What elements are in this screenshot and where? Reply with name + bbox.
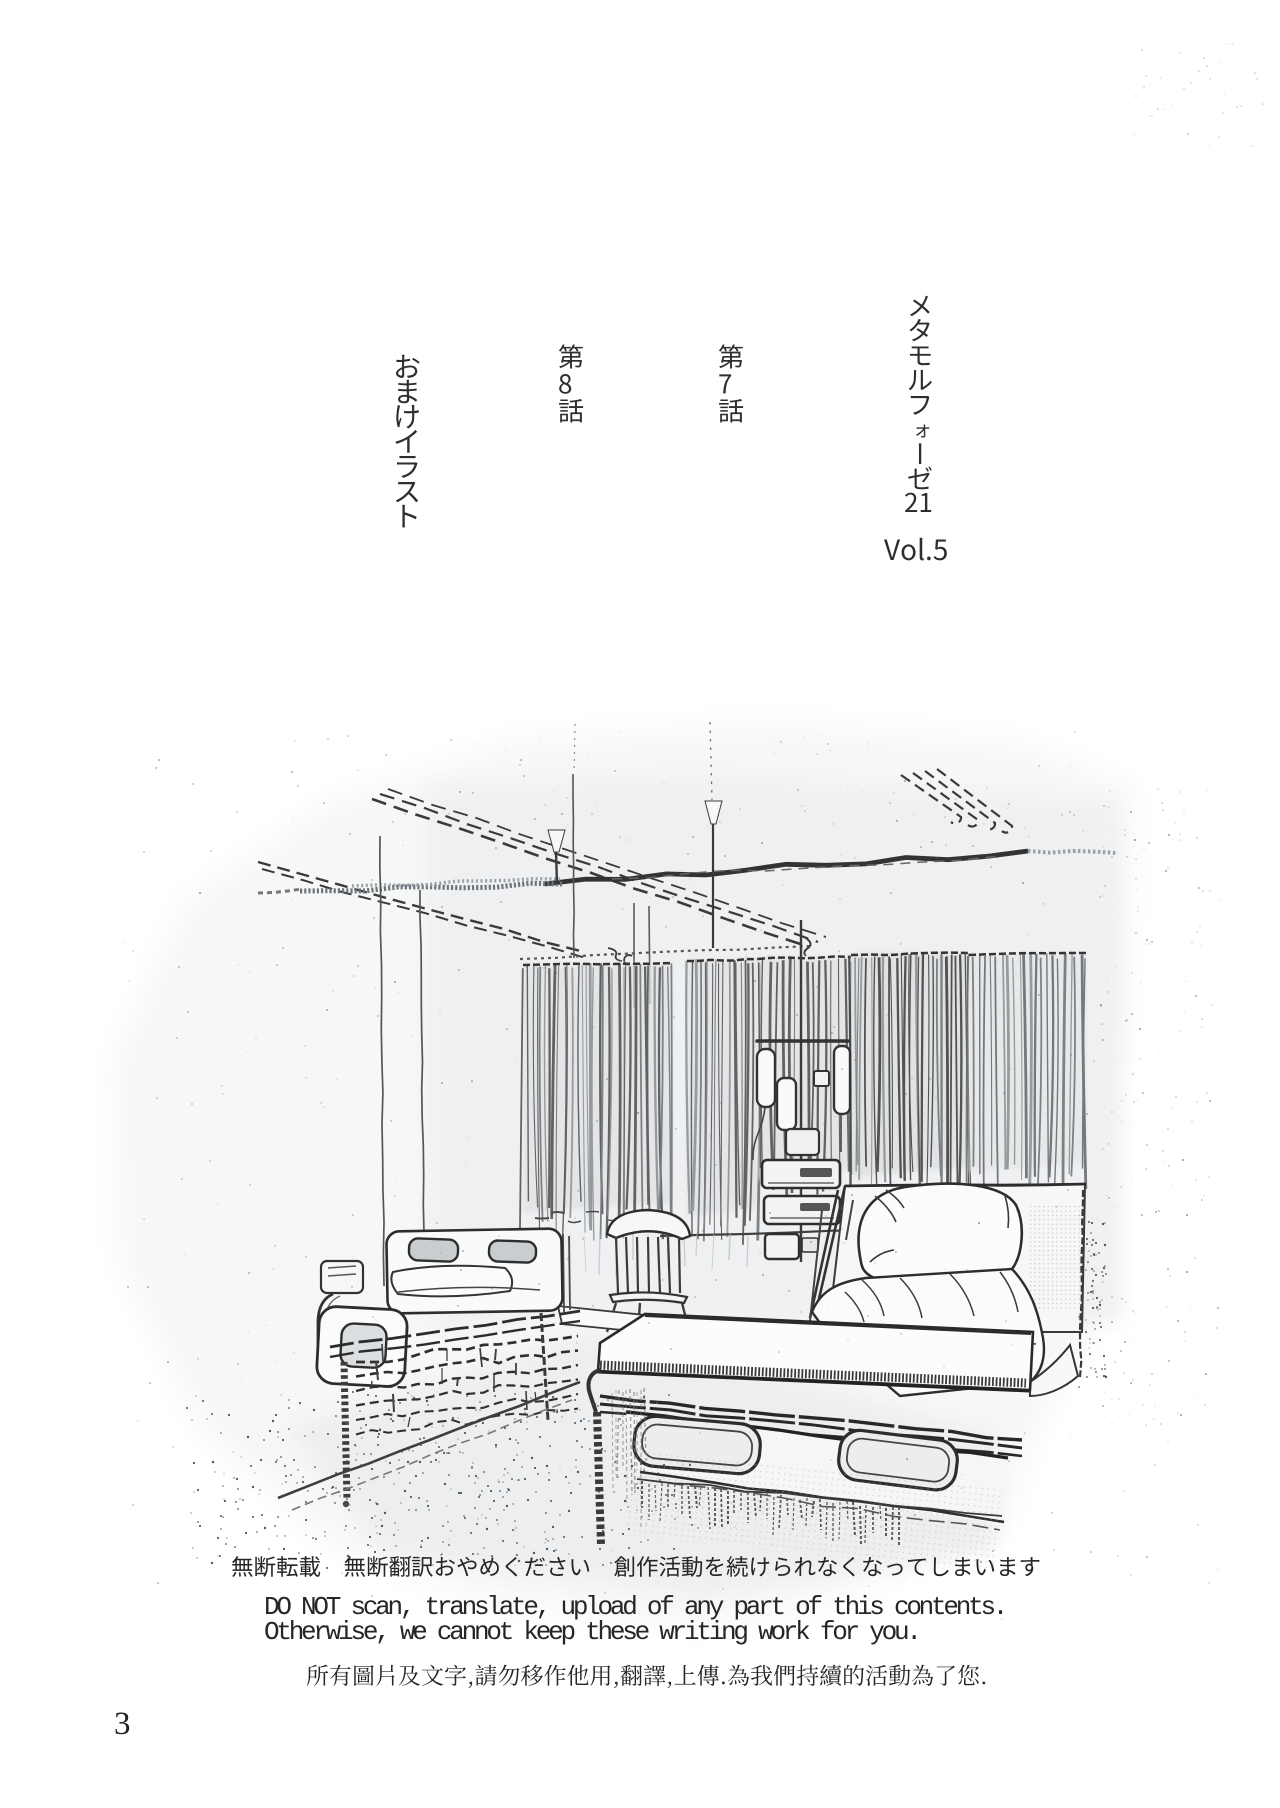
svg-text:3: 3 xyxy=(114,1706,131,1742)
svg-text:Otherwise, we cannot keep thes: Otherwise, we cannot keep these writing … xyxy=(264,1617,919,1647)
